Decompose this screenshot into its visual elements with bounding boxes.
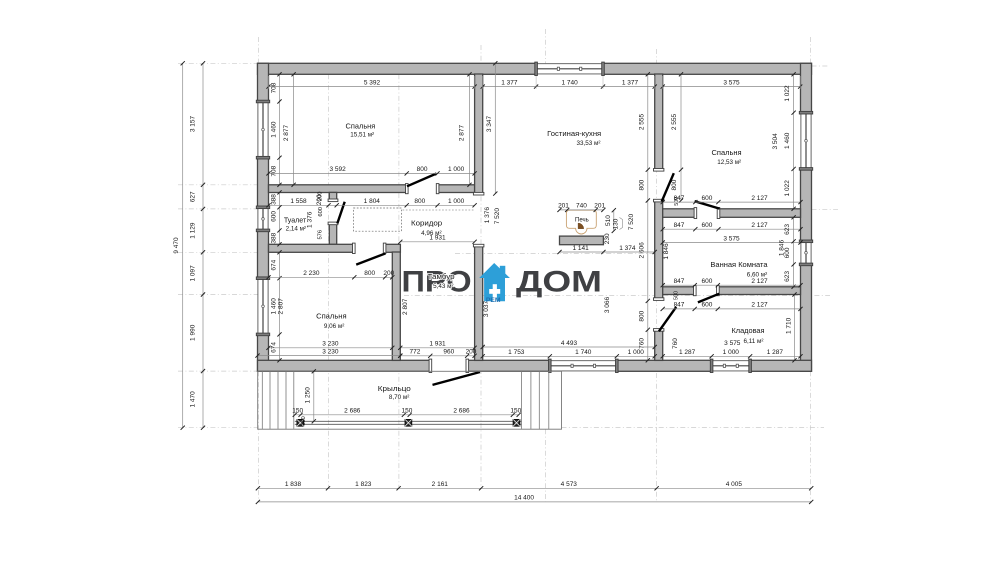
svg-text:Ванная Комната: Ванная Комната: [710, 260, 767, 269]
svg-text:2 877: 2 877: [458, 124, 465, 141]
svg-text:1 804: 1 804: [364, 198, 381, 205]
svg-text:230: 230: [604, 233, 611, 244]
svg-text:600: 600: [784, 247, 791, 258]
svg-text:3 347: 3 347: [486, 115, 493, 132]
svg-text:2 555: 2 555: [671, 113, 678, 130]
svg-text:7 520: 7 520: [628, 213, 635, 230]
svg-text:1 097: 1 097: [190, 265, 197, 282]
svg-text:7 520: 7 520: [494, 208, 501, 225]
svg-text:1 022: 1 022: [784, 180, 791, 197]
svg-text:1 740: 1 740: [575, 349, 592, 356]
svg-text:1 250: 1 250: [305, 387, 312, 404]
svg-text:Кладовая: Кладовая: [732, 326, 765, 335]
svg-text:1 141: 1 141: [572, 245, 589, 252]
svg-text:Спальня: Спальня: [346, 122, 376, 131]
svg-text:510: 510: [605, 215, 612, 226]
svg-text:600: 600: [271, 211, 278, 222]
svg-text:2 127: 2 127: [751, 278, 768, 285]
svg-text:708: 708: [271, 165, 278, 176]
svg-text:5,43 м²: 5,43 м²: [433, 283, 453, 290]
svg-text:2 877: 2 877: [283, 124, 290, 141]
svg-text:3 575: 3 575: [723, 235, 740, 242]
svg-text:1 287: 1 287: [679, 349, 696, 356]
svg-text:8,70 м²: 8,70 м²: [389, 394, 409, 401]
svg-text:9 470: 9 470: [173, 237, 180, 254]
svg-text:12,53 м²: 12,53 м²: [717, 159, 741, 166]
svg-text:2 230: 2 230: [303, 270, 320, 277]
svg-text:1 377: 1 377: [501, 79, 518, 86]
svg-text:1 753: 1 753: [508, 349, 525, 356]
svg-text:800: 800: [639, 310, 646, 321]
svg-text:3 575: 3 575: [724, 340, 741, 347]
svg-text:1 460: 1 460: [271, 121, 278, 138]
svg-text:740: 740: [576, 203, 587, 210]
svg-text:3 504: 3 504: [772, 133, 779, 150]
svg-text:ПРО: ПРО: [402, 265, 472, 298]
svg-text:Гостиная-кухня: Гостиная-кухня: [547, 129, 601, 138]
svg-text:201: 201: [558, 203, 569, 210]
svg-text:3 592: 3 592: [329, 166, 346, 173]
svg-text:1 022: 1 022: [784, 85, 791, 102]
svg-text:674: 674: [271, 259, 278, 270]
svg-text:623: 623: [784, 271, 791, 282]
svg-text:1 377: 1 377: [622, 79, 639, 86]
svg-text:800: 800: [417, 166, 428, 173]
svg-text:33,53 м²: 33,53 м²: [577, 140, 601, 147]
svg-text:150: 150: [401, 408, 412, 415]
svg-text:2 807: 2 807: [402, 298, 409, 315]
svg-text:3 575: 3 575: [723, 79, 740, 86]
svg-text:1 846: 1 846: [663, 243, 670, 260]
svg-text:2 555: 2 555: [639, 113, 646, 130]
svg-text:800: 800: [639, 179, 646, 190]
svg-text:1 376: 1 376: [484, 207, 491, 224]
svg-text:388: 388: [271, 232, 278, 243]
svg-text:576: 576: [318, 230, 324, 240]
svg-text:1 931: 1 931: [429, 235, 446, 242]
svg-text:14 400: 14 400: [514, 495, 534, 502]
svg-text:600: 600: [701, 278, 712, 285]
svg-text:2 606: 2 606: [639, 242, 646, 259]
svg-text:2 161: 2 161: [432, 481, 449, 488]
svg-text:1 000: 1 000: [448, 198, 465, 205]
svg-text:800: 800: [671, 179, 678, 190]
svg-text:130: 130: [613, 218, 620, 229]
svg-text:847: 847: [674, 302, 685, 309]
svg-text:Спальня: Спальня: [316, 311, 347, 320]
svg-text:1 823: 1 823: [355, 481, 372, 488]
svg-text:1 374: 1 374: [619, 245, 636, 252]
svg-text:3 230: 3 230: [322, 348, 339, 355]
svg-text:1 990: 1 990: [190, 324, 197, 341]
svg-text:708: 708: [271, 82, 278, 93]
svg-text:Туалет: Туалет: [284, 216, 307, 225]
svg-text:4 573: 4 573: [561, 481, 578, 488]
svg-text:847: 847: [674, 195, 685, 202]
svg-text:800: 800: [414, 198, 425, 205]
svg-text:388: 388: [271, 194, 278, 205]
svg-text:1 558: 1 558: [290, 198, 307, 205]
svg-text:2,14 м²: 2,14 м²: [286, 226, 306, 233]
svg-text:500: 500: [674, 291, 680, 300]
svg-text:2 807: 2 807: [277, 298, 284, 315]
svg-text:1 129: 1 129: [190, 222, 197, 239]
svg-text:1 470: 1 470: [190, 391, 197, 408]
svg-text:600: 600: [318, 207, 324, 217]
svg-text:201: 201: [594, 203, 605, 210]
svg-text:РЕМ: РЕМ: [486, 297, 501, 304]
svg-text:847: 847: [674, 278, 685, 285]
svg-text:1 376: 1 376: [306, 211, 313, 228]
svg-text:Крыльцо: Крыльцо: [378, 384, 411, 393]
svg-text:150: 150: [301, 416, 307, 425]
svg-text:200: 200: [318, 192, 324, 202]
svg-text:623: 623: [784, 224, 791, 235]
svg-text:1 710: 1 710: [786, 317, 793, 334]
svg-text:Тамбур: Тамбур: [428, 272, 455, 281]
svg-text:1 460: 1 460: [784, 132, 791, 149]
svg-text:Печь: Печь: [575, 217, 589, 223]
svg-text:200: 200: [383, 270, 394, 277]
svg-text:2 686: 2 686: [344, 408, 361, 415]
svg-text:ДОМ: ДОМ: [516, 265, 602, 298]
svg-text:1 838: 1 838: [285, 481, 302, 488]
svg-text:600: 600: [701, 195, 712, 202]
svg-text:3 230: 3 230: [322, 341, 339, 348]
svg-text:9,06 м²: 9,06 м²: [324, 323, 344, 330]
svg-text:1 000: 1 000: [448, 166, 465, 173]
svg-text:1 000: 1 000: [628, 349, 645, 356]
svg-text:1 931: 1 931: [429, 341, 446, 348]
svg-text:200: 200: [466, 349, 477, 356]
svg-text:4 005: 4 005: [726, 481, 743, 488]
svg-text:2 127: 2 127: [751, 302, 768, 309]
svg-text:6,11 м²: 6,11 м²: [744, 338, 764, 345]
svg-text:150: 150: [292, 408, 303, 415]
svg-text:150: 150: [510, 408, 521, 415]
svg-text:760: 760: [672, 338, 679, 349]
svg-text:960: 960: [443, 349, 454, 356]
svg-text:4 493: 4 493: [561, 340, 578, 347]
svg-text:Коридор: Коридор: [411, 219, 442, 228]
svg-text:3 066: 3 066: [604, 296, 611, 313]
svg-text:847: 847: [674, 222, 685, 229]
svg-text:1 740: 1 740: [561, 79, 578, 86]
svg-text:15,51 м²: 15,51 м²: [350, 132, 374, 139]
svg-text:5 392: 5 392: [364, 79, 381, 86]
svg-text:772: 772: [409, 349, 420, 356]
svg-text:674: 674: [271, 342, 278, 353]
svg-text:2 127: 2 127: [751, 222, 768, 229]
svg-text:600: 600: [701, 302, 712, 309]
svg-text:2 686: 2 686: [453, 408, 470, 415]
svg-text:600: 600: [701, 222, 712, 229]
svg-text:627: 627: [190, 191, 197, 202]
svg-text:1 000: 1 000: [723, 349, 740, 356]
svg-text:Спальня: Спальня: [712, 148, 742, 157]
svg-text:3 157: 3 157: [190, 115, 197, 132]
svg-text:2 127: 2 127: [751, 195, 768, 202]
svg-text:1 287: 1 287: [767, 349, 784, 356]
svg-text:800: 800: [364, 270, 375, 277]
